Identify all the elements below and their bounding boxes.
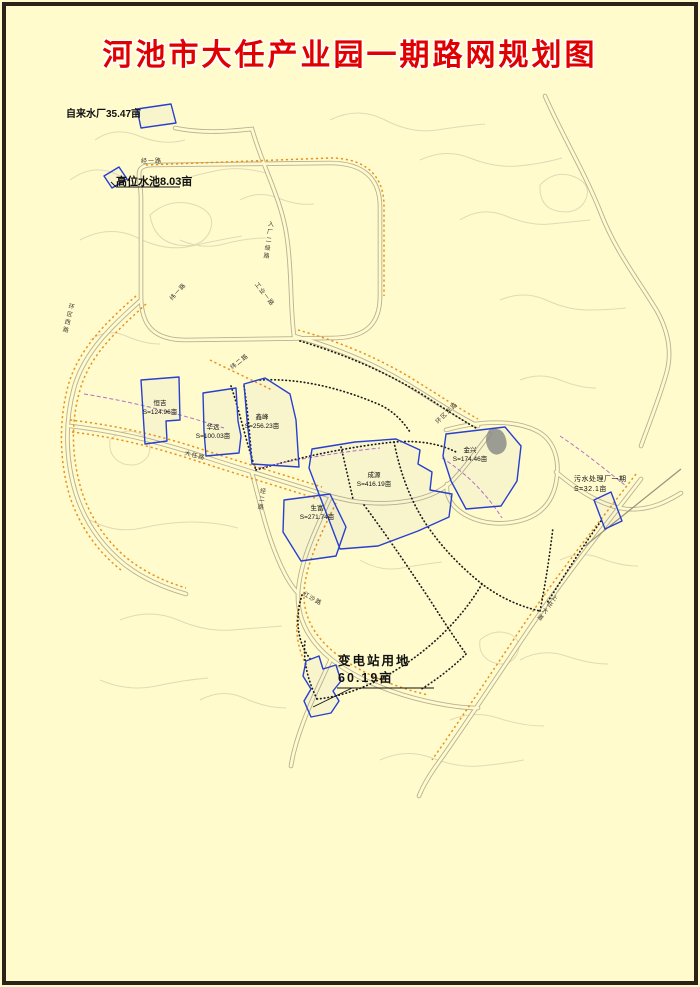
parcel-area: S=124.96亩 [136,409,184,418]
parcel-label-jinxing: 金兴 S=174.46亩 [446,447,494,464]
parcel-sewage-outline [594,492,622,529]
substation-label-line1: 变电站用地 [338,653,411,670]
parcel-name: 华远 [191,424,235,433]
sewage-plant-label-line1: 污水处理厂一期 [574,475,627,485]
map-sheet: 河池市大任产业园一期路网规划图 自来水厂35.47亩 高位水池8.03亩 变电站… [0,0,700,987]
parcel-label-xinfeng: 鑫峰 S=256.23亩 [238,414,286,431]
parcel-name: 恒吉 [136,400,184,409]
substation-label-line2: 60.19亩 [338,670,411,687]
parcel-area: S=256.23亩 [238,423,286,432]
road-label-jing1: 经一路 [141,156,162,165]
parcel-area: S=174.46亩 [446,456,494,465]
parcel-name: 生富 [291,505,343,514]
substation-label: 变电站用地 60.19亩 [338,653,411,687]
parcel-water-plant-outline [137,104,176,128]
water-plant-label: 自来水厂35.47亩 [66,105,141,120]
parcel-name: 金兴 [446,447,494,456]
parcel-jinxing-outline [443,427,521,509]
parcel-label-chengyuan: 成源 S=416.19亩 [348,472,400,489]
page-title: 河池市大任产业园一期路网规划图 [0,30,700,74]
sewage-plant-label-line2: S=32.1亩 [574,485,627,495]
parcel-label-shengfu: 生富 S=271.74亩 [291,505,343,522]
high-pool-label: 高位水池8.03亩 [116,173,192,189]
parcel-label-huayuan: 华远 S=100.03亩 [191,424,235,441]
parcel-area: S=416.19亩 [348,481,400,490]
parcel-area: S=100.03亩 [191,433,235,442]
parcel-substation-outline [303,656,341,717]
parcel-name: 成源 [348,472,400,481]
parcel-label-hengji: 恒吉 S=124.96亩 [136,400,184,417]
sewage-plant-label: 污水处理厂一期 S=32.1亩 [574,475,627,494]
parcel-area: S=271.74亩 [291,514,343,523]
parcel-name: 鑫峰 [238,414,286,423]
parcel-huayuan-outline [203,388,241,456]
